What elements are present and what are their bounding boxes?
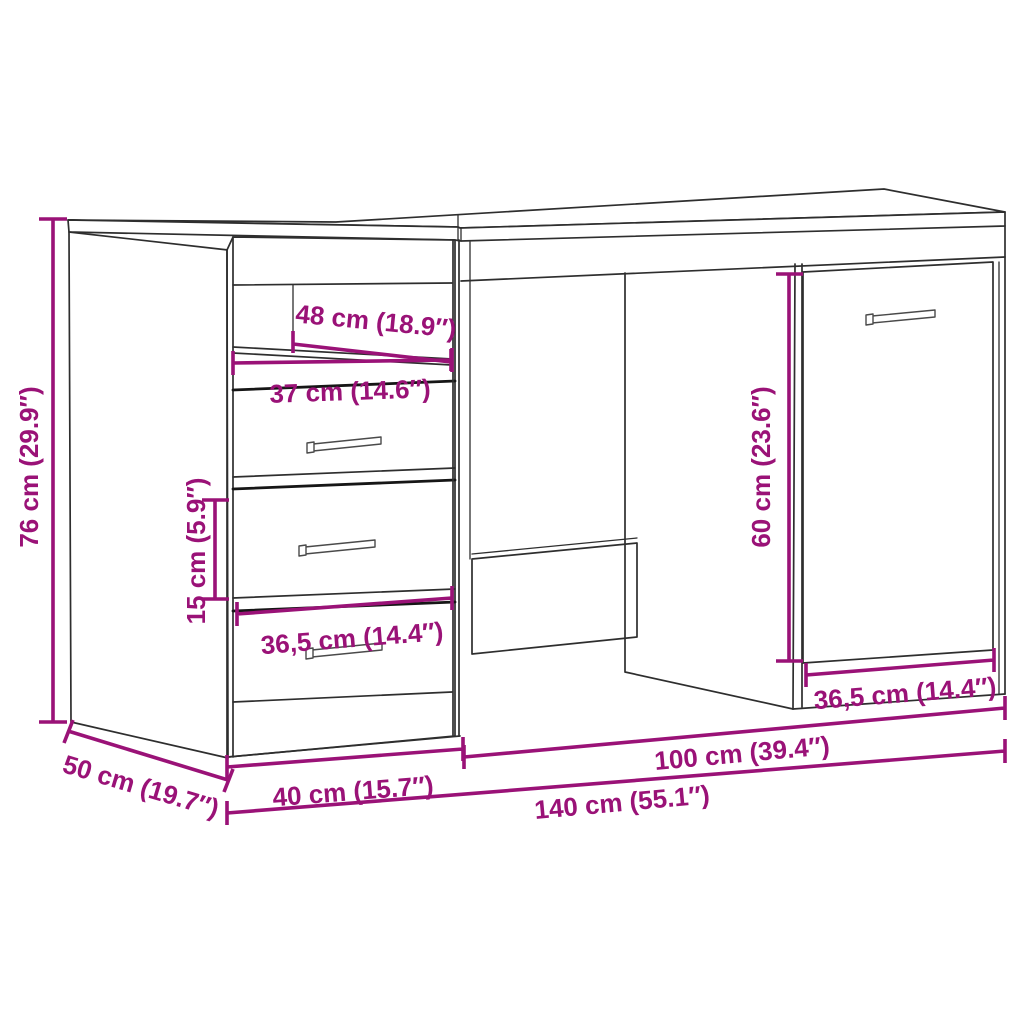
- cabinet-door: [803, 262, 993, 663]
- desk-line-art: [68, 189, 1005, 758]
- dimension-total-height: 76 cm (29.9″): [14, 219, 67, 722]
- desk-dimension-drawing: 76 cm (29.9″) 48 cm (18.9″) 37 cm (14.6″…: [0, 0, 1024, 1024]
- dim-label-drawer-front-width: 37 cm (14.6″): [269, 373, 431, 409]
- dim-label-drawer-height: 15 cm (5.9″): [181, 478, 211, 625]
- cabinet-front-left-edges: [793, 264, 802, 709]
- dim-label-knee-clearance-height: 60 cm (23.6″): [746, 386, 776, 547]
- dim-label-total-height: 76 cm (29.9″): [14, 386, 44, 547]
- product-dimension-diagram: 76 cm (29.9″) 48 cm (18.9″) 37 cm (14.6″…: [0, 0, 1024, 1024]
- modesty-panel: [472, 543, 637, 654]
- dim-label-door-width: 36,5 cm (14.4″): [813, 671, 998, 715]
- dimension-right-section-width: 100 cm (39.4″): [464, 696, 1005, 776]
- dim-label-depth: 50 cm (19.7″): [59, 749, 222, 824]
